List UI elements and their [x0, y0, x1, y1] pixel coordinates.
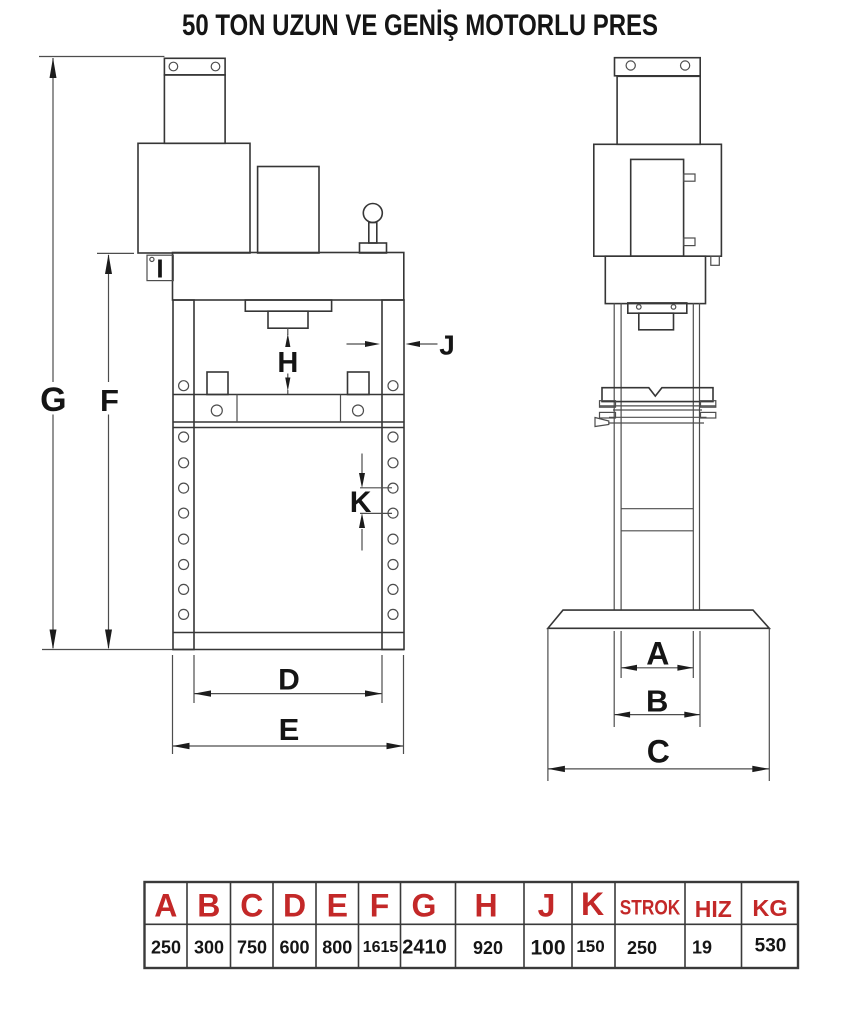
svg-text:750: 750: [237, 938, 267, 958]
svg-text:A: A: [646, 636, 669, 672]
svg-text:F: F: [370, 888, 390, 924]
svg-text:D: D: [283, 888, 306, 924]
svg-text:150: 150: [576, 937, 604, 956]
svg-text:D: D: [278, 664, 300, 697]
svg-text:B: B: [197, 888, 220, 924]
svg-text:B: B: [646, 684, 668, 719]
svg-text:530: 530: [755, 936, 787, 957]
svg-text:E: E: [327, 888, 348, 924]
svg-text:A: A: [154, 888, 177, 924]
svg-text:H: H: [474, 888, 497, 924]
svg-text:J: J: [439, 330, 455, 361]
svg-text:1615: 1615: [363, 939, 399, 956]
svg-text:E: E: [279, 712, 300, 747]
svg-text:KG: KG: [752, 895, 787, 921]
svg-text:G: G: [412, 888, 437, 924]
svg-text:C: C: [647, 733, 670, 769]
svg-text:600: 600: [279, 938, 309, 958]
svg-text:K: K: [581, 886, 604, 922]
svg-text:J: J: [538, 888, 556, 924]
svg-text:920: 920: [473, 938, 503, 958]
svg-text:100: 100: [530, 937, 565, 960]
svg-text:50 TON UZUN VE GENİŞ MOTORLU P: 50 TON UZUN VE GENİŞ MOTORLU PRES: [182, 9, 658, 42]
svg-text:I: I: [156, 254, 163, 284]
svg-text:2410: 2410: [402, 937, 447, 959]
svg-text:G: G: [40, 381, 66, 419]
svg-text:STROK: STROK: [620, 897, 681, 920]
svg-text:F: F: [100, 383, 119, 418]
svg-text:HIZ: HIZ: [695, 896, 732, 922]
svg-text:K: K: [350, 486, 372, 519]
svg-text:250: 250: [151, 938, 181, 958]
svg-text:300: 300: [194, 938, 224, 958]
svg-text:C: C: [240, 888, 263, 924]
svg-text:800: 800: [322, 938, 352, 958]
svg-text:H: H: [277, 347, 298, 379]
svg-text:19: 19: [692, 938, 712, 958]
svg-text:250: 250: [627, 938, 657, 958]
